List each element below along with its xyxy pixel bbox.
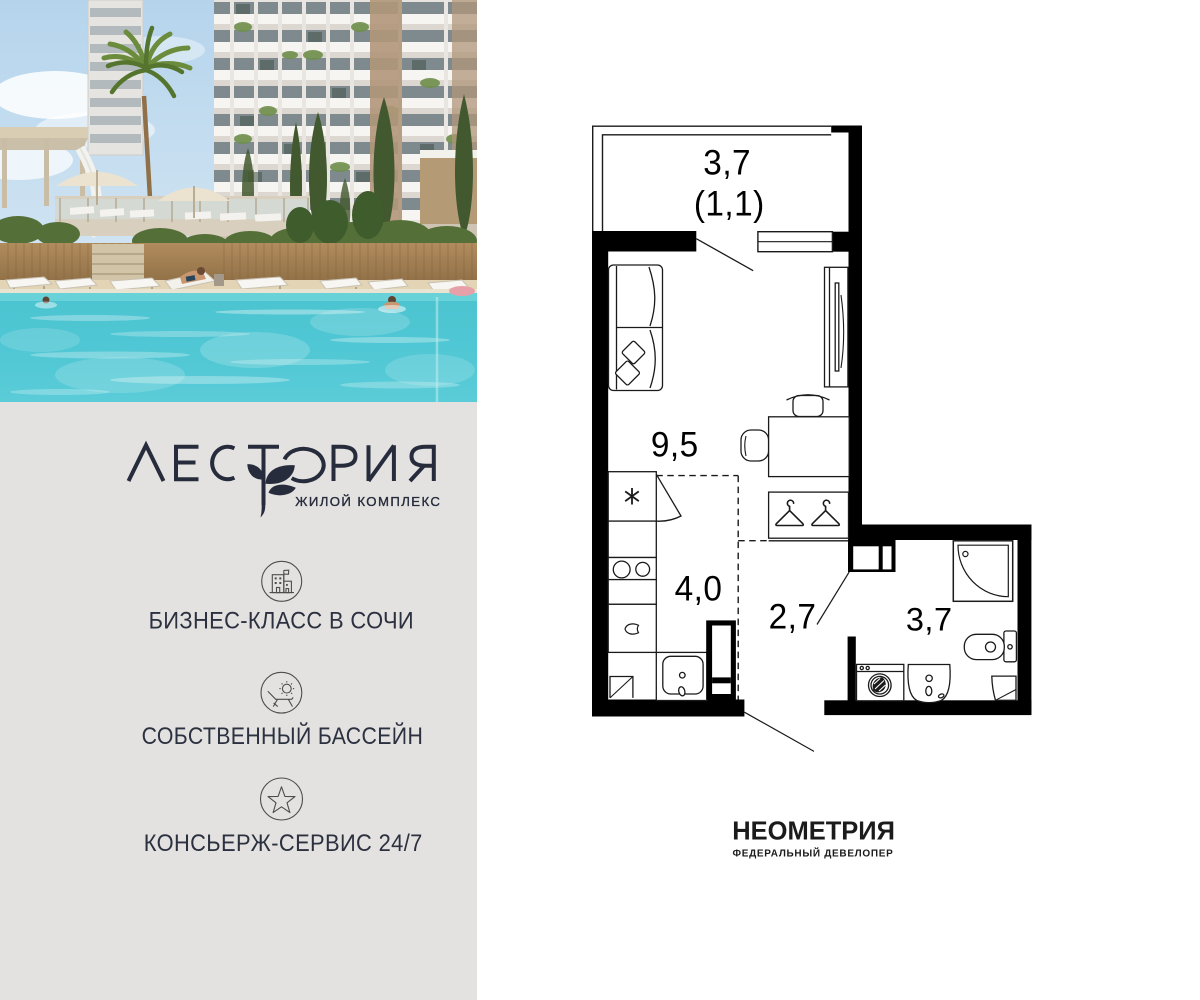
svg-text:2,7: 2,7 <box>769 598 817 637</box>
svg-text:СОБСТВЕННЫЙ БАССЕЙН: СОБСТВЕННЫЙ БАССЕЙН <box>142 722 424 750</box>
svg-text:(1,1): (1,1) <box>694 185 765 224</box>
svg-text:НЕОМЕТРИЯ: НЕОМЕТРИЯ <box>732 818 895 846</box>
svg-text:3,7: 3,7 <box>906 602 953 638</box>
svg-text:9,5: 9,5 <box>651 426 699 465</box>
svg-text:4,0: 4,0 <box>675 570 723 609</box>
svg-text:ФЕДЕРАЛЬНЫЙ ДЕВЕЛОПЕР: ФЕДЕРАЛЬНЫЙ ДЕВЕЛОПЕР <box>732 846 893 859</box>
svg-text:БИЗНЕС-КЛАСС В СОЧИ: БИЗНЕС-КЛАСС В СОЧИ <box>149 606 414 633</box>
svg-text:ЖИЛОЙ КОМПЛЕКС: ЖИЛОЙ КОМПЛЕКС <box>295 494 441 509</box>
svg-text:3,7: 3,7 <box>703 144 751 183</box>
svg-text:КОНСЬЕРЖ-СЕРВИС 24/7: КОНСЬЕРЖ-СЕРВИС 24/7 <box>144 829 423 856</box>
